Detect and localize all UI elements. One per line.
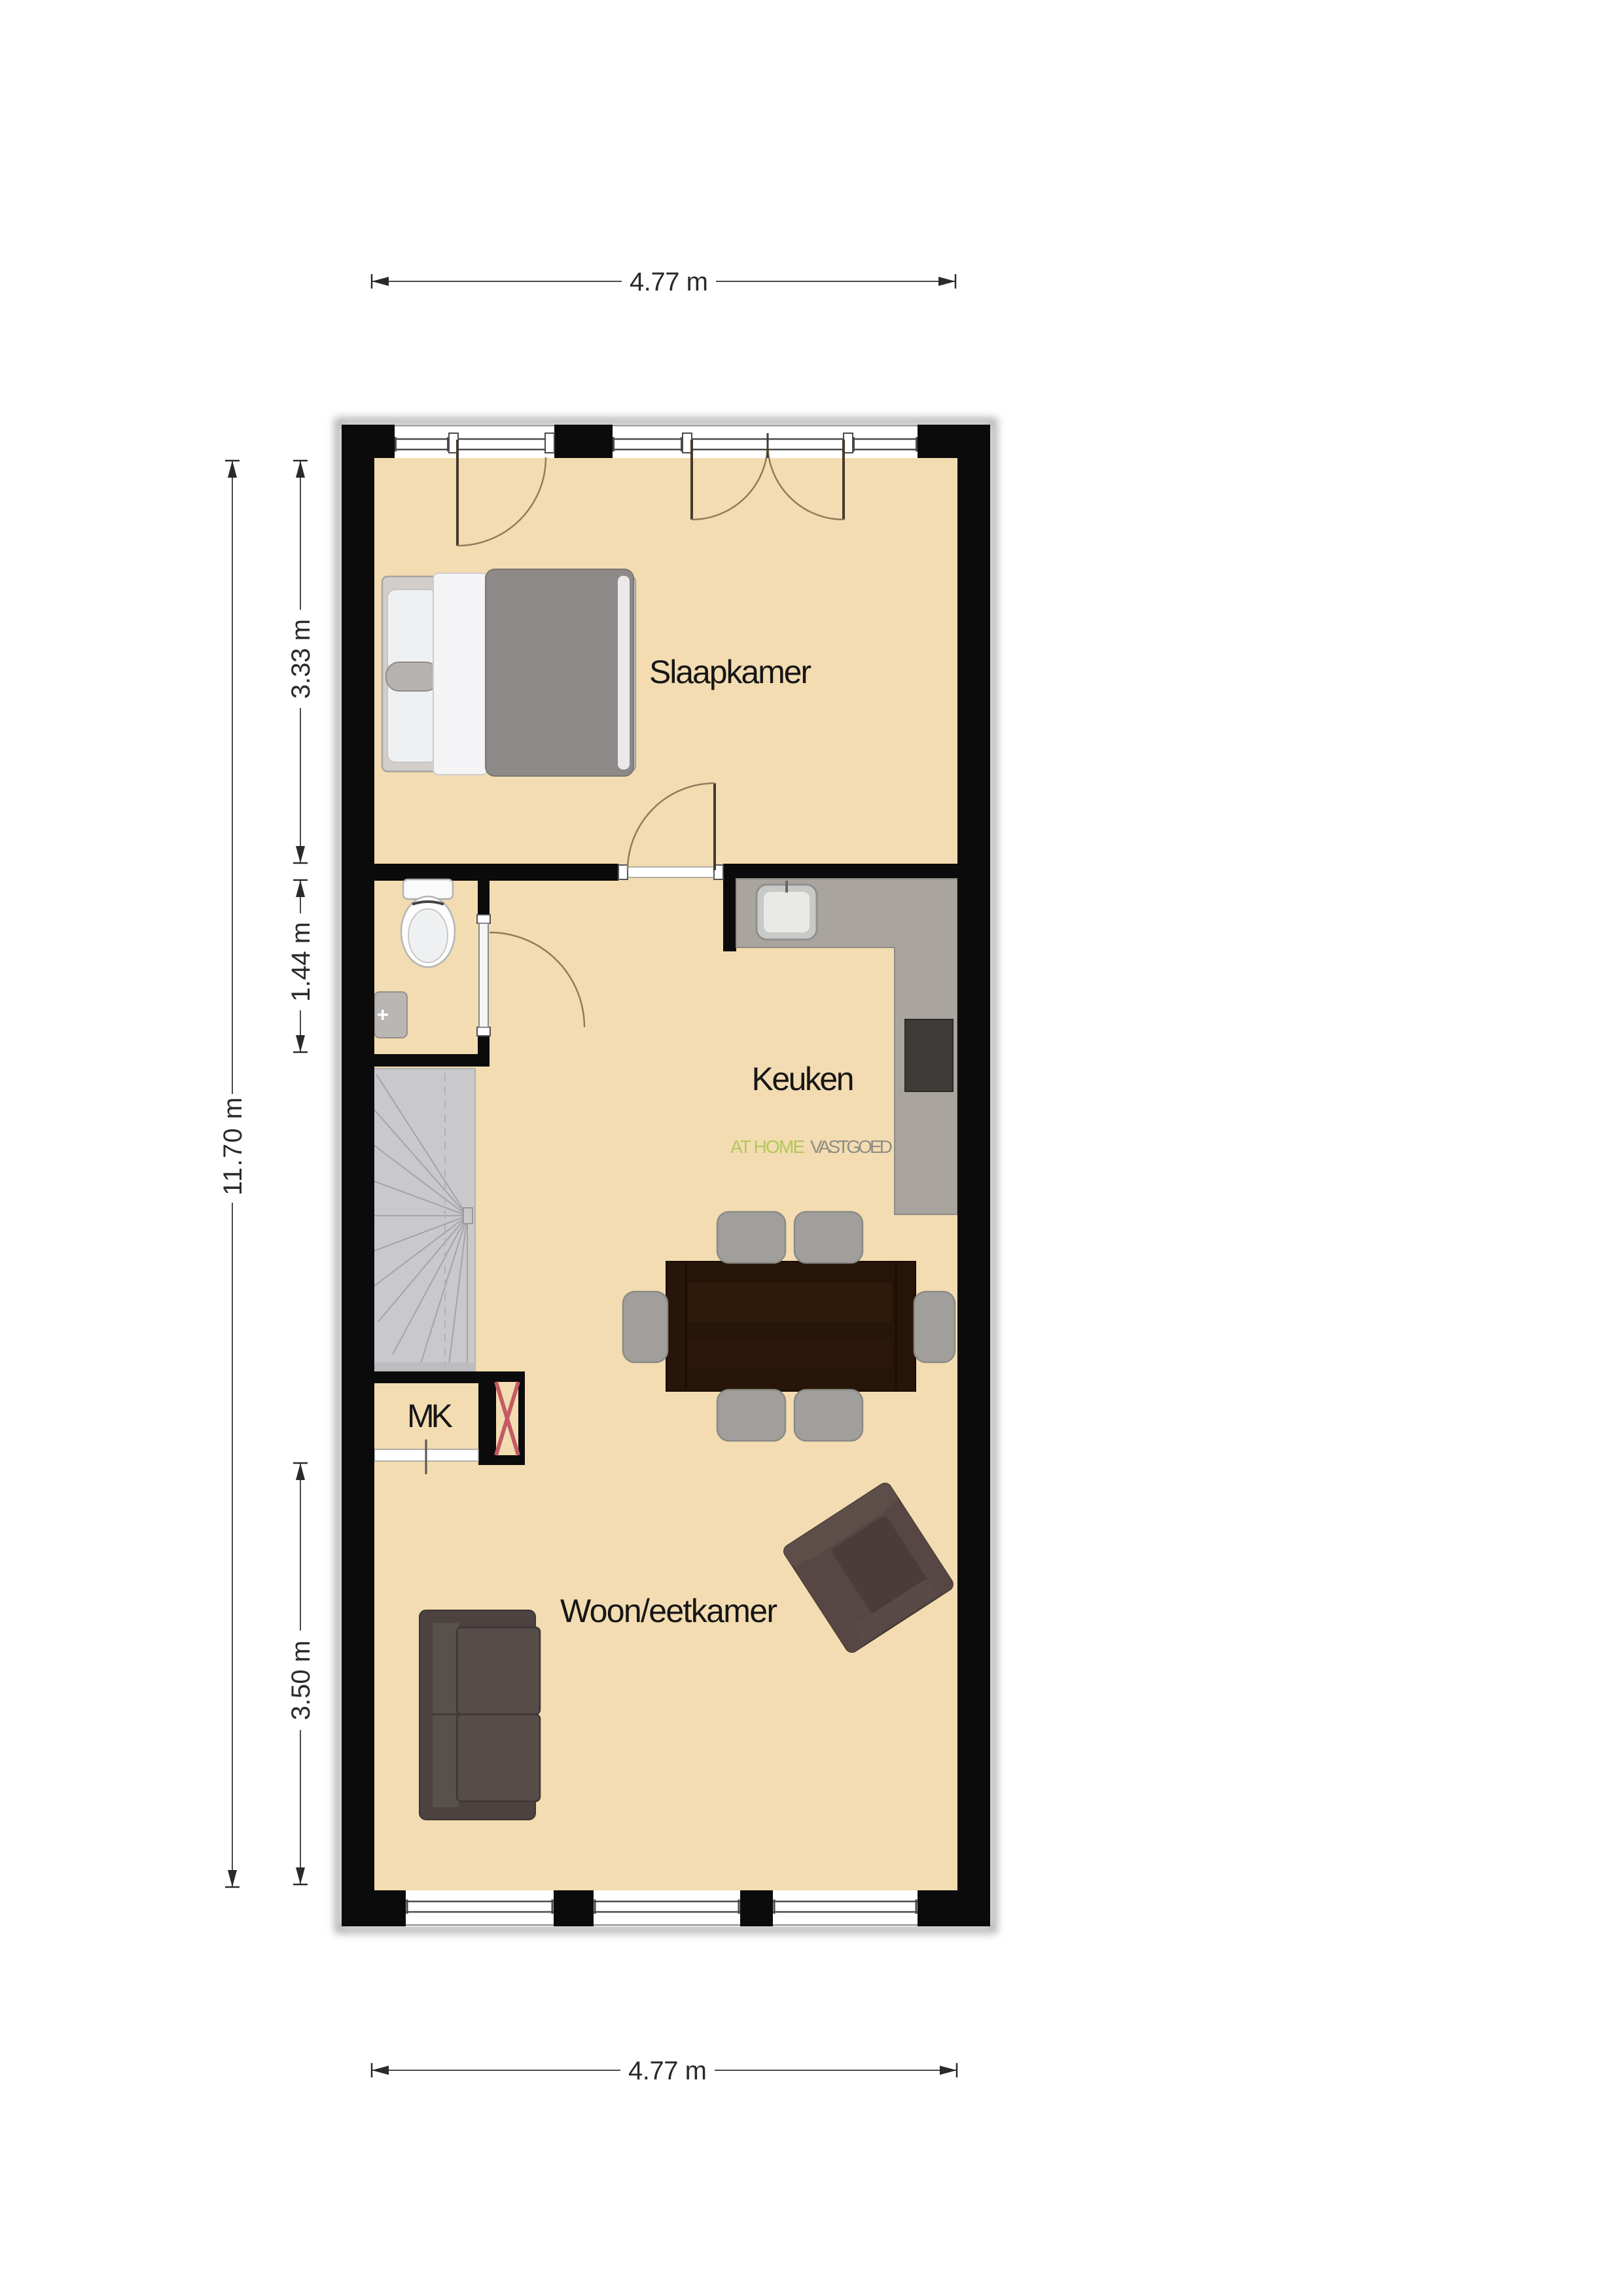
svg-text:11.70 m: 11.70 m: [219, 1097, 247, 1195]
svg-text:Slaapkamer: Slaapkamer: [649, 654, 811, 690]
svg-text:3.50 m: 3.50 m: [287, 1640, 315, 1720]
svg-text:VASTGOED: VASTGOED: [810, 1137, 893, 1157]
svg-text:Keuken: Keuken: [752, 1061, 855, 1097]
svg-text:4.77 m: 4.77 m: [628, 2057, 707, 2085]
svg-text:3.33 m: 3.33 m: [287, 619, 315, 699]
svg-text:1.44 m: 1.44 m: [287, 922, 315, 1002]
svg-text:4.77 m: 4.77 m: [630, 268, 708, 296]
svg-text:MK: MK: [407, 1398, 453, 1434]
svg-text:AT HOME: AT HOME: [730, 1137, 805, 1157]
svg-text:Woon/eetkamer: Woon/eetkamer: [560, 1593, 777, 1629]
